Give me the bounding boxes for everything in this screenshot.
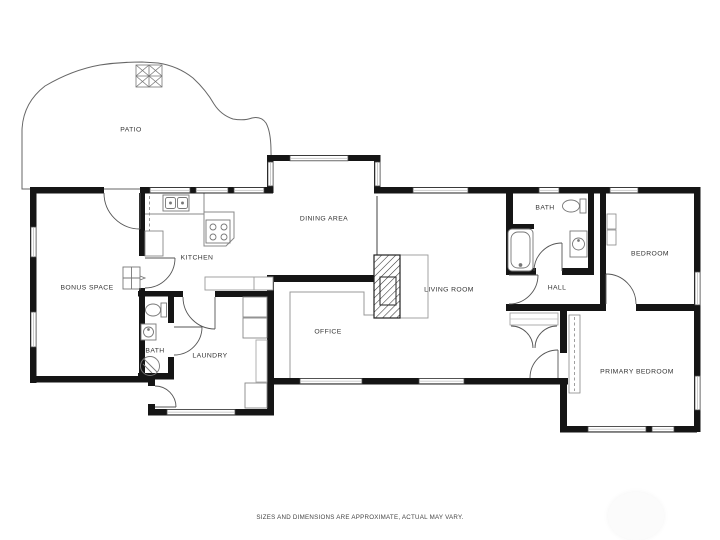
room-label-patio: PATIO (120, 127, 141, 134)
room-label-laundry: LAUNDRY (192, 353, 227, 360)
doors (104, 193, 636, 407)
bathroom-sink-icon-left (141, 324, 156, 340)
fireplace-icon (374, 255, 428, 318)
refrigerator-icon (145, 231, 163, 256)
room-label-hall: HALL (548, 285, 567, 292)
room-label-living-room: LIVING ROOM (424, 287, 474, 294)
room-label-bath-left: BATH (145, 348, 164, 355)
room-label-kitchen: KITCHEN (181, 255, 214, 262)
walls (30, 155, 701, 433)
furnace-icon (123, 267, 145, 289)
floor-plan-drawing (0, 0, 720, 540)
stove-icon (206, 220, 230, 243)
kitchen-sink-icon (163, 195, 189, 211)
room-label-primary-bedroom: PRIMARY BEDROOM (600, 369, 674, 376)
room-label-bonus-space: BONUS SPACE (61, 285, 114, 292)
room-label-office: OFFICE (314, 329, 341, 336)
watermark (608, 492, 664, 540)
toilet-icon-right (563, 199, 587, 213)
patio-outline (22, 62, 272, 189)
bathroom-sink-icon-right (570, 231, 587, 257)
windows (31, 156, 700, 432)
bathtub-icon (508, 229, 533, 271)
room-label-bedroom: BEDROOM (631, 251, 669, 258)
patio-table-icon (136, 65, 162, 87)
floor-plan-page: PATIO BONUS SPACE KITCHEN DINING AREA LI… (0, 0, 720, 540)
room-label-bath-right: BATH (535, 205, 554, 212)
washer-dryer-icon (243, 297, 267, 408)
toilet-icon-left (146, 303, 167, 317)
kitchen-counter (205, 277, 273, 290)
room-label-dining-area: DINING AREA (300, 216, 348, 223)
